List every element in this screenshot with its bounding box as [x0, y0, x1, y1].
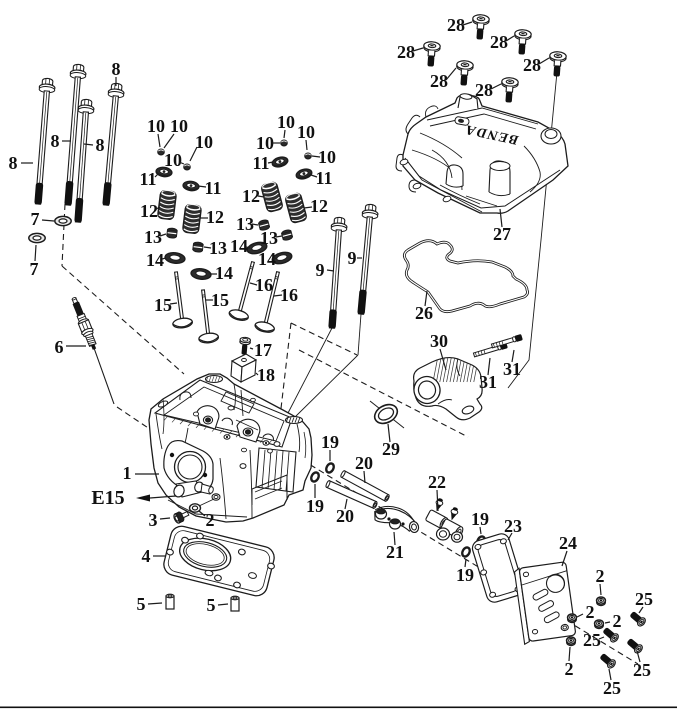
svg-text:13: 13 — [209, 238, 227, 258]
svg-text:20: 20 — [355, 453, 373, 473]
svg-text:13: 13 — [260, 228, 278, 248]
svg-text:17: 17 — [254, 340, 272, 360]
svg-text:E15: E15 — [91, 487, 124, 509]
svg-text:25: 25 — [633, 660, 651, 680]
svg-text:28: 28 — [523, 55, 541, 75]
svg-text:28: 28 — [447, 15, 465, 35]
svg-text:28: 28 — [490, 32, 508, 52]
svg-text:9: 9 — [348, 248, 357, 268]
svg-text:10: 10 — [195, 132, 213, 152]
svg-text:28: 28 — [397, 42, 415, 62]
svg-text:5: 5 — [137, 594, 146, 614]
svg-text:11: 11 — [139, 169, 156, 189]
svg-text:10: 10 — [164, 150, 182, 170]
svg-text:10: 10 — [170, 116, 188, 136]
svg-text:14: 14 — [146, 250, 164, 270]
svg-text:8: 8 — [51, 131, 60, 151]
svg-text:1: 1 — [123, 463, 132, 483]
svg-text:2: 2 — [206, 510, 215, 530]
svg-text:2: 2 — [586, 602, 595, 622]
svg-text:8: 8 — [112, 59, 121, 79]
svg-text:10: 10 — [277, 112, 295, 132]
svg-text:16: 16 — [255, 275, 273, 295]
svg-text:2: 2 — [565, 659, 574, 679]
svg-text:3: 3 — [149, 510, 158, 530]
svg-text:7: 7 — [31, 209, 40, 229]
svg-text:2: 2 — [596, 566, 605, 586]
svg-text:22: 22 — [428, 472, 446, 492]
svg-text:30: 30 — [430, 331, 448, 351]
svg-text:10: 10 — [297, 122, 315, 142]
svg-text:12: 12 — [242, 186, 260, 206]
svg-text:13: 13 — [236, 214, 254, 234]
svg-text:2: 2 — [613, 611, 622, 631]
svg-text:28: 28 — [430, 71, 448, 91]
svg-text:16: 16 — [280, 285, 298, 305]
svg-text:19: 19 — [321, 432, 339, 452]
svg-text:19: 19 — [456, 565, 474, 585]
svg-text:26: 26 — [415, 303, 433, 323]
svg-text:19: 19 — [471, 509, 489, 529]
svg-text:9: 9 — [316, 260, 325, 280]
svg-text:4: 4 — [142, 546, 151, 566]
svg-text:12: 12 — [310, 196, 328, 216]
svg-text:11: 11 — [204, 178, 221, 198]
svg-text:11: 11 — [315, 168, 332, 188]
svg-text:29: 29 — [382, 439, 400, 459]
svg-text:6: 6 — [55, 337, 64, 357]
svg-text:5: 5 — [207, 595, 216, 615]
svg-text:23: 23 — [504, 516, 522, 536]
svg-text:11: 11 — [252, 153, 269, 173]
svg-text:24: 24 — [559, 533, 577, 553]
svg-text:12: 12 — [140, 201, 158, 221]
svg-text:10: 10 — [147, 116, 165, 136]
svg-text:14: 14 — [230, 236, 248, 256]
svg-text:7: 7 — [30, 259, 39, 279]
svg-text:13: 13 — [144, 227, 162, 247]
svg-text:15: 15 — [154, 295, 172, 315]
svg-text:14: 14 — [215, 263, 233, 283]
svg-text:12: 12 — [206, 207, 224, 227]
svg-text:8: 8 — [9, 153, 18, 173]
svg-text:25: 25 — [583, 630, 601, 650]
svg-text:10: 10 — [318, 147, 336, 167]
svg-text:19: 19 — [306, 496, 324, 516]
svg-text:10: 10 — [256, 133, 274, 153]
svg-text:25: 25 — [603, 678, 621, 698]
svg-text:8: 8 — [96, 135, 105, 155]
svg-text:18: 18 — [257, 365, 275, 385]
svg-text:15: 15 — [211, 290, 229, 310]
svg-text:25: 25 — [635, 589, 653, 609]
